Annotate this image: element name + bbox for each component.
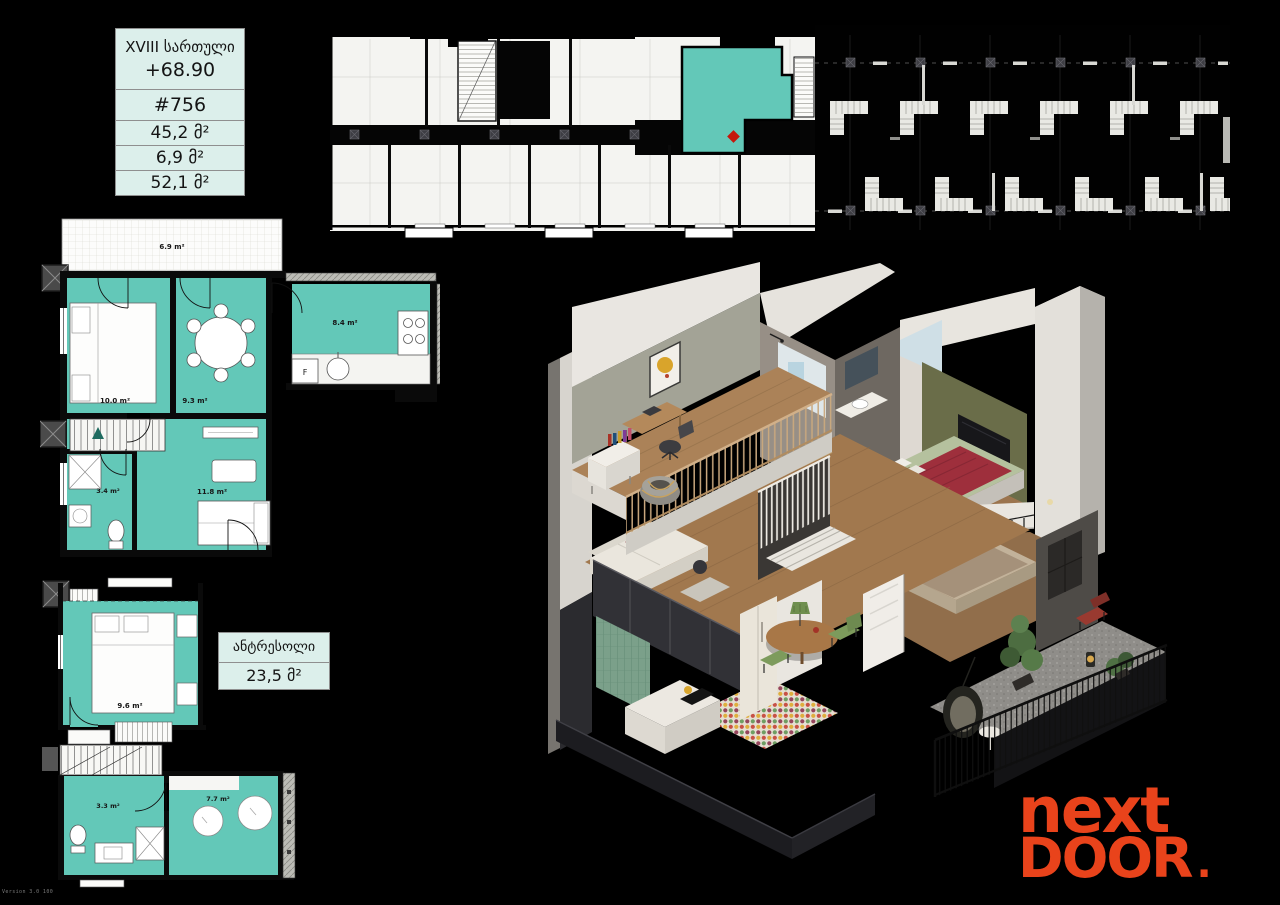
main-level-plan: 6.9 m² 1 <box>40 213 440 561</box>
unit-info-table: XVIII სართული +68.90 #756 45,2 მ² 6,9 მ²… <box>115 28 245 196</box>
isometric-render <box>530 262 1180 860</box>
elevator-core <box>498 41 550 119</box>
balcony-area-label: 6.9 m² <box>159 243 184 251</box>
stair-core-icon <box>458 41 496 121</box>
kitchen-area-label: 8.4 m² <box>332 319 357 327</box>
mezz-stairs <box>42 745 162 775</box>
dining-area-label: 9.3 m² <box>182 397 207 405</box>
mezzanine-label-box: ანტრესოლი 23,5 მ² <box>218 632 330 690</box>
round-pouf <box>640 476 680 505</box>
fridge-label: F <box>303 368 308 377</box>
mezz-bedroom-label: 9.6 m² <box>117 702 142 710</box>
elevation-label: +68.90 <box>116 58 244 82</box>
logo-dot: . <box>1197 841 1210 887</box>
floor-row: XVIII სართული +68.90 <box>116 29 244 90</box>
lantern <box>1086 652 1095 667</box>
mezzanine-plan: 9.6 m² 3.3 m² 7.7 m² <box>40 575 300 890</box>
logo-door-text: DOOR <box>1018 826 1192 890</box>
bathroom-area-label: 3.4 m² <box>96 487 120 495</box>
dining-table <box>766 620 838 654</box>
mezz-bathroom-label: 3.3 m² <box>96 802 120 810</box>
mezzanine-title: ანტრესოლი <box>219 633 329 663</box>
side-table <box>693 560 707 574</box>
column-marker <box>40 421 66 447</box>
area-apartment: 45,2 მ² <box>116 121 244 146</box>
kettle <box>684 686 692 694</box>
watermark-text: Version 3.0 100 <box>2 889 53 895</box>
living-area-label: 11.8 m² <box>197 488 227 496</box>
building-key-plan <box>330 25 1230 240</box>
bedroom-area-label: 10.0 m² <box>100 397 130 405</box>
plan-bed <box>70 303 156 403</box>
logo-line2: DOOR. <box>1018 836 1210 880</box>
plan-stairs <box>70 419 165 451</box>
unit-number: #756 <box>116 90 244 121</box>
nextdoor-logo: next DOOR. <box>1018 786 1210 880</box>
floorplan-sheet: XVIII სართული +68.90 #756 45,2 მ² 6,9 მ²… <box>0 0 1280 905</box>
sconce-light <box>1047 499 1053 505</box>
front-walls <box>556 720 875 859</box>
area-total: 52,1 მ² <box>116 171 244 195</box>
area-summer: 6,9 მ² <box>116 146 244 171</box>
floor-label: XVIII სართული <box>116 36 244 58</box>
cup <box>813 627 819 633</box>
mezz-dressing-label: 7.7 m² <box>206 795 230 803</box>
plan-balcony: 6.9 m² <box>62 219 282 271</box>
mezzanine-area: 23,5 მ² <box>219 663 329 689</box>
key-plan-right-wing <box>815 25 1230 240</box>
